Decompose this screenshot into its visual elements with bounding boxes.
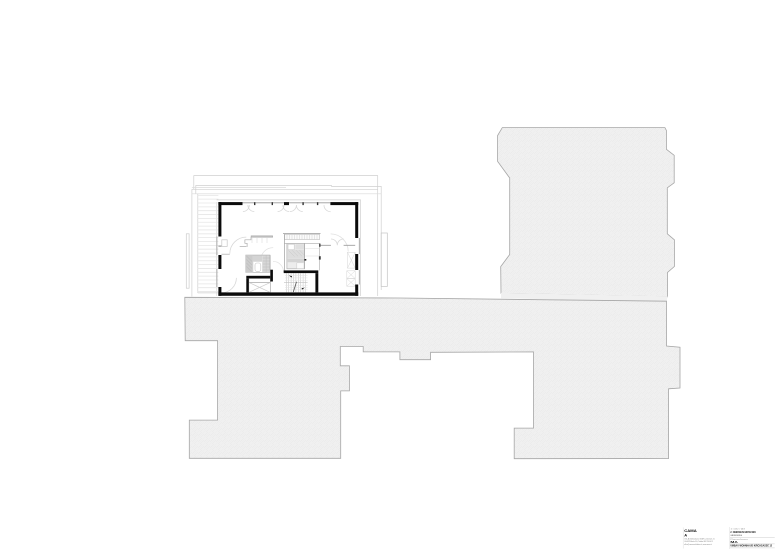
svg-text:UMBAU WOHNHAUS KIRCHGASSE 12: UMBAU WOHNHAUS KIRCHGASSE 12 (730, 544, 772, 548)
svg-text:GRUNDRISS: GRUNDRISS (730, 535, 742, 537)
svg-text:A: A (684, 533, 687, 538)
svg-text:Chli. Architekturbuero GmbH, L: Chli. Architekturbuero GmbH, Lerchenstr.… (684, 537, 715, 540)
svg-text:CH-9470 Buchs SG, Telefon 081: CH-9470 Buchs SG, Telefon 081 756 44 21 (684, 541, 713, 543)
svg-text:1:100 / A3: 1:100 / A3 (730, 528, 746, 531)
svg-text:2. OBERGESCHOSS NEU: 2. OBERGESCHOSS NEU (730, 530, 756, 534)
svg-text:office@cama-architektur.ch, ww: office@cama-architektur.ch, www.cama.ch (684, 543, 711, 546)
svg-text:MA: MA (730, 540, 738, 544)
